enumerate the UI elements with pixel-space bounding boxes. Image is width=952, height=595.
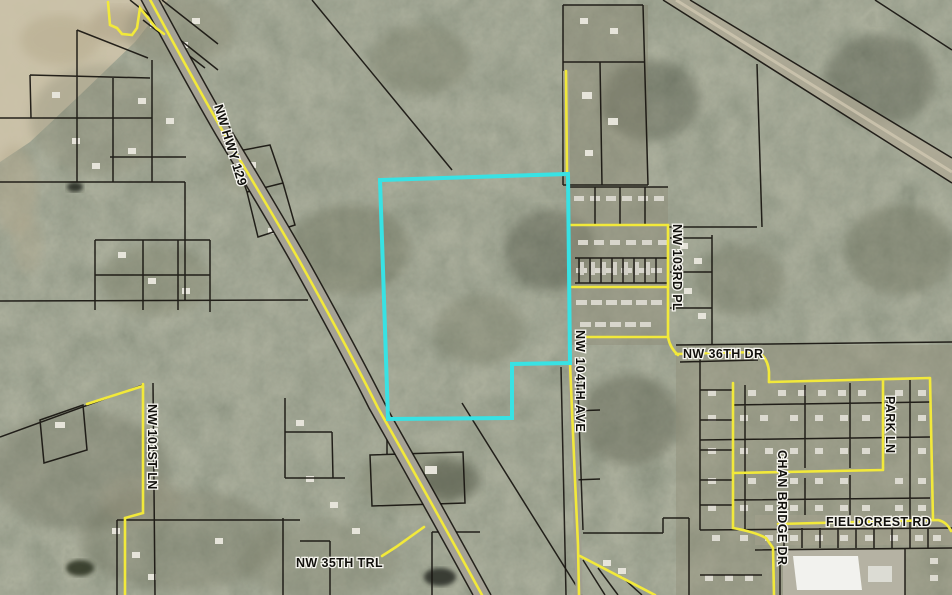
structure <box>740 505 748 511</box>
structure <box>624 262 628 275</box>
structure <box>636 300 647 305</box>
structure <box>296 420 304 426</box>
structure <box>580 262 584 275</box>
structure <box>840 535 848 541</box>
structure <box>862 448 870 454</box>
structure <box>790 415 798 421</box>
structure <box>862 505 870 511</box>
structure <box>708 505 716 511</box>
road-label-fieldcrest-rd: FIELDCREST RD <box>826 515 931 529</box>
structure <box>895 478 903 484</box>
structure <box>618 568 626 574</box>
structure <box>352 528 360 534</box>
structure <box>576 300 587 305</box>
structure <box>815 505 823 511</box>
structure <box>740 535 748 541</box>
structure <box>740 448 748 454</box>
structure <box>138 98 146 104</box>
structure <box>858 390 866 396</box>
structure <box>918 478 926 484</box>
structure <box>712 535 720 541</box>
structure <box>591 262 595 275</box>
structure <box>642 240 652 245</box>
structure <box>930 558 938 564</box>
structure <box>790 448 798 454</box>
structure <box>748 390 756 396</box>
structure <box>865 535 873 541</box>
structure <box>578 240 588 245</box>
structure <box>610 240 620 245</box>
structure <box>606 300 617 305</box>
structure <box>778 390 786 396</box>
structure <box>594 240 604 245</box>
structure <box>306 476 314 482</box>
structure <box>646 262 650 275</box>
structure <box>708 390 716 396</box>
structure <box>640 322 651 327</box>
structure <box>595 322 606 327</box>
structure <box>192 18 200 24</box>
road-label-chan-bridge-dr: CHAN BRIDGE DR <box>775 450 789 565</box>
structure <box>815 415 823 421</box>
structure <box>215 538 223 544</box>
structure <box>918 505 926 511</box>
structure <box>580 18 588 24</box>
structure <box>790 505 798 511</box>
structure <box>330 502 338 508</box>
structure <box>128 148 136 154</box>
structure <box>72 138 80 144</box>
structure <box>765 448 773 454</box>
structure <box>918 415 926 421</box>
structure <box>745 575 753 581</box>
structure <box>862 415 870 421</box>
structure <box>585 150 593 156</box>
structure <box>705 575 713 581</box>
structure <box>622 196 632 201</box>
structure <box>603 560 611 566</box>
structure <box>574 196 584 201</box>
structure <box>815 535 823 541</box>
structure <box>930 575 938 581</box>
structure <box>765 505 773 511</box>
structure <box>626 240 636 245</box>
road-label-nw-36th-dr: NW 36TH DR <box>683 347 763 361</box>
structure <box>933 535 941 541</box>
structure <box>658 240 668 245</box>
structure <box>815 478 823 484</box>
structure <box>613 262 617 275</box>
structure <box>166 118 174 124</box>
structure <box>621 300 632 305</box>
structure <box>148 278 156 284</box>
structure <box>818 390 826 396</box>
structure <box>838 390 846 396</box>
structure <box>580 322 591 327</box>
structure <box>132 552 140 558</box>
structure <box>582 92 592 99</box>
structure <box>790 478 798 484</box>
structure <box>708 448 716 454</box>
structure <box>694 258 702 264</box>
structure <box>698 313 706 319</box>
structure <box>610 28 618 34</box>
structure <box>625 322 636 327</box>
structure <box>610 322 621 327</box>
structure <box>638 196 648 201</box>
structure <box>840 448 848 454</box>
structure <box>708 478 716 484</box>
structure <box>182 288 190 294</box>
road-label-nw-104th-ave: NW 104TH AVE <box>573 330 587 433</box>
structure <box>918 448 926 454</box>
structure <box>606 196 616 201</box>
structure <box>92 163 100 169</box>
structure <box>740 415 748 421</box>
structure <box>815 448 823 454</box>
structure <box>840 505 848 511</box>
structure <box>608 118 618 125</box>
road-label-nw-101st-ln: NW 101ST LN <box>145 404 159 490</box>
road-label-nw-35th-trl: NW 35TH TRL <box>296 556 383 570</box>
structure <box>915 535 923 541</box>
aerial-map[interactable]: NW HWY 129 NW 101ST LN NW 35TH TRL NW 10… <box>0 0 952 595</box>
structure <box>790 535 798 541</box>
structure <box>748 478 756 484</box>
structure <box>425 466 437 474</box>
structure <box>918 390 926 396</box>
structure <box>52 92 60 98</box>
structure <box>840 415 848 421</box>
road-label-park-ln: PARK LN <box>883 396 897 453</box>
structure <box>591 300 602 305</box>
structure <box>635 262 639 275</box>
structure <box>651 300 662 305</box>
structure <box>602 262 606 275</box>
structure <box>840 478 848 484</box>
structure <box>760 415 768 421</box>
structure <box>118 252 126 258</box>
structure <box>684 288 692 294</box>
structure <box>55 422 65 428</box>
road-label-nw-103rd-pl: NW 103RD PL <box>670 224 684 311</box>
structure <box>654 196 664 201</box>
structure <box>725 575 733 581</box>
structure <box>895 505 903 511</box>
structure <box>890 535 898 541</box>
structure <box>112 528 120 534</box>
